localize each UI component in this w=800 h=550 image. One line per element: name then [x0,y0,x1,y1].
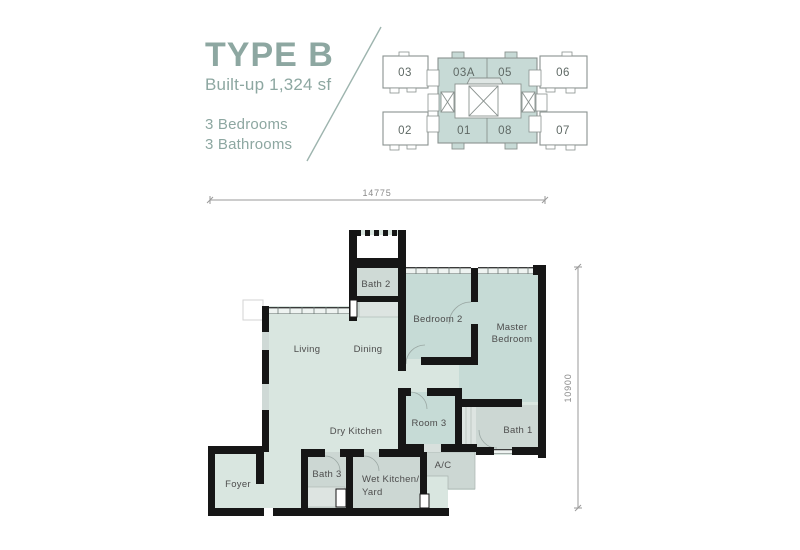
label-wet-kitchen-line2: Yard [362,487,383,498]
key-plan-label-03a: 03A [453,67,475,79]
key-plan-label-07: 07 [556,125,570,137]
window-bedroom2-top [406,267,471,274]
key-plan-core [441,78,535,118]
label-master-line2: Bedroom [492,334,533,345]
key-plan-label-05: 05 [498,67,512,79]
label-bedroom2: Bedroom 2 [413,314,462,325]
diagonal-divider-line [307,27,381,161]
window-living-top [267,307,350,314]
dimension-height [574,264,582,511]
key-plan: 03 03A 05 06 02 01 08 07 [383,52,587,150]
key-plan-label-02: 02 [398,125,412,137]
label-wet-kitchen-line1: Wet Kitchen/ [362,474,419,485]
floorplan-page: TYPE B Built-up 1,324 sf 3 Bedrooms 3 Ba… [0,0,800,550]
label-bath2: Bath 2 [361,279,390,290]
key-plan-label-06: 06 [556,67,570,79]
key-plan-label-03: 03 [398,67,412,79]
bath2-vanity [359,301,400,317]
key-plan-corridor [428,94,439,111]
key-plan-label-01: 01 [457,125,471,137]
window-master-top [478,267,535,274]
key-plan-tab [452,143,464,149]
label-dining: Dining [354,344,383,355]
label-bath1: Bath 1 [503,425,532,436]
label-master-line1: Master [497,322,528,333]
key-plan-tab [505,52,517,58]
living-left-window1 [262,332,269,350]
key-plan-tab [505,143,517,149]
yard-opening [356,235,398,259]
label-ac: A/C [435,460,452,471]
balcony-outline [243,300,263,320]
label-dry-kitchen: Dry Kitchen [330,426,382,437]
room3-bottom-opening [424,444,441,452]
floor-plan: Living Dining Bath 2 Bedroom 2 Master Be… [208,230,546,516]
window-bath1-bottom [494,449,512,454]
bottom-wall-gap [264,508,273,516]
dimension-width-label: 14775 [362,188,391,198]
floorplan-graphic: 03 03A 05 06 02 01 08 07 14775 10900 [0,0,800,550]
label-room3: Room 3 [411,418,446,429]
wardrobe [461,405,477,445]
key-plan-label-08: 08 [498,125,512,137]
label-foyer: Foyer [225,479,251,490]
label-bath3: Bath 3 [312,469,341,480]
label-living: Living [294,344,321,355]
dimension-height-label: 10900 [563,373,573,402]
key-plan-corridor [536,94,547,111]
living-left-window2 [262,384,269,410]
key-plan-tab [452,52,464,58]
